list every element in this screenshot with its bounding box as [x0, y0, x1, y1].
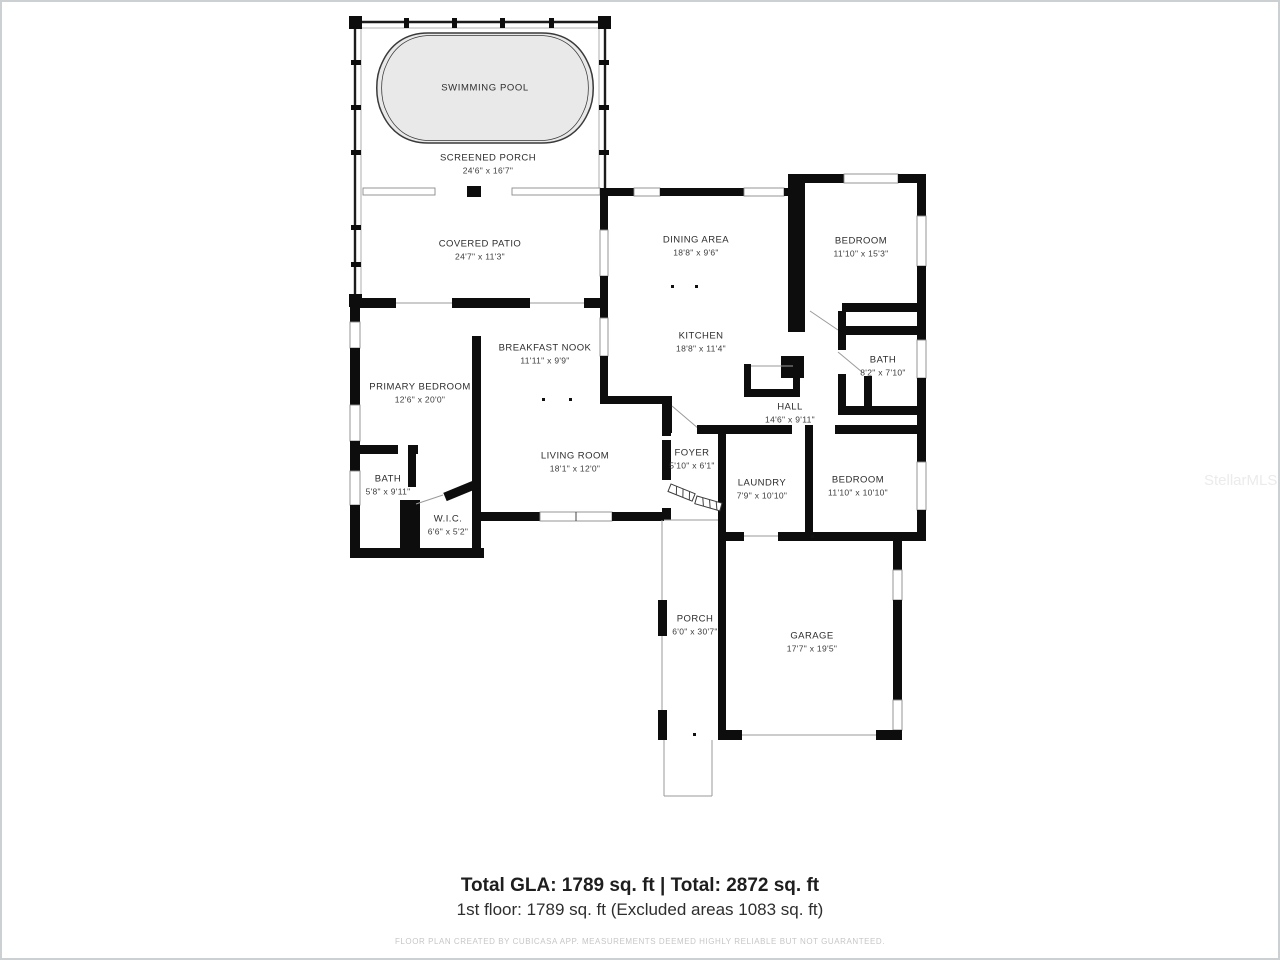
room-label-porch: PORCH 6'0" x 30'7" [672, 614, 718, 637]
summary-block: Total GLA: 1789 sq. ft | Total: 2872 sq.… [0, 875, 1280, 946]
room-label-screened-porch: SCREENED PORCH 24'6" x 16'7" [440, 153, 536, 176]
room-label-breakfast-nook: BREAKFAST NOOK 11'11" x 9'9" [499, 343, 592, 366]
room-label-hall: HALL 14'6" x 9'11" [765, 402, 815, 425]
disclaimer-text: FLOOR PLAN CREATED BY CUBICASA APP. MEAS… [0, 937, 1280, 946]
total-gla-text: Total GLA: 1789 sq. ft | Total: 2872 sq.… [0, 875, 1280, 897]
swimming-pool-label: SWIMMING POOL [441, 83, 529, 94]
room-label-bedroom-top: BEDROOM 11'10" x 15'3" [834, 236, 889, 259]
room-label-bedroom-right: BEDROOM 11'10" x 10'10" [828, 475, 888, 498]
porch-garage-walls [658, 520, 926, 796]
room-label-laundry: LAUNDRY 7'9" x 10'10" [737, 478, 788, 501]
room-label-kitchen: KITCHEN 18'8" x 11'4" [676, 331, 726, 354]
room-label-bath-left: BATH 5'8" x 9'11" [366, 474, 411, 497]
first-floor-text: 1st floor: 1789 sq. ft (Excluded areas 1… [0, 900, 1280, 920]
room-label-primary-bedroom: PRIMARY BEDROOM 12'6" x 20'0" [369, 382, 470, 405]
room-label-wic: W.I.C. 6'6" x 5'2" [428, 514, 468, 537]
room-label-dining-area: DINING AREA 18'8" x 9'6" [663, 235, 729, 258]
stellar-mls-watermark: StellarMLS [1204, 472, 1277, 489]
kitchen-dining-walls [600, 188, 805, 434]
room-label-garage: GARAGE 17'7" x 19'5" [787, 631, 838, 654]
floorplan-svg [0, 0, 1280, 960]
room-label-foyer: FOYER 5'10" x 6'1" [669, 448, 715, 471]
floor-plan-page: SWIMMING POOL SCREENED PORCH 24'6" x 16'… [0, 0, 1280, 960]
room-label-covered-patio: COVERED PATIO 24'7" x 11'3" [439, 239, 522, 262]
room-label-living-room: LIVING ROOM 18'1" x 12'0" [541, 451, 609, 474]
room-label-bath-right: BATH 8'2" x 7'10" [860, 355, 906, 378]
